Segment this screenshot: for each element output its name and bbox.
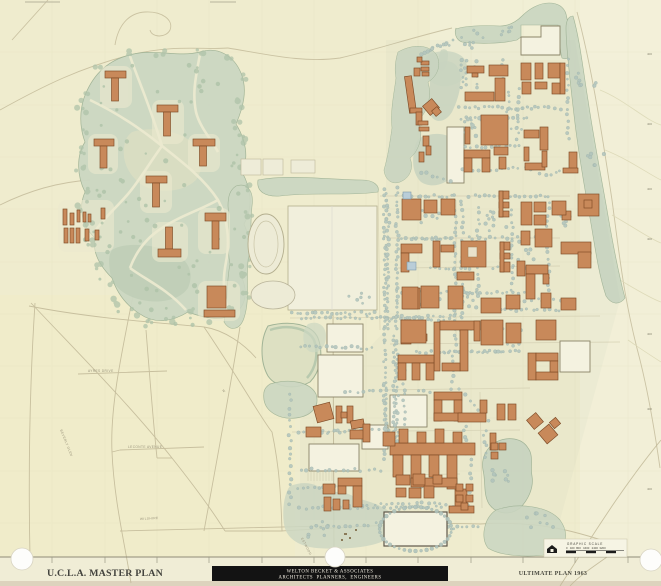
svg-text:0 400 800 1600 2400 32: 0 400 800 1600 2400 3200	[566, 546, 606, 550]
svg-text:400: 400	[647, 52, 652, 56]
svg-text:AYRES DRIVE: AYRES DRIVE	[88, 369, 114, 373]
svg-text:ULTIMATE PLAN 1963: ULTIMATE PLAN 1963	[519, 571, 587, 577]
svg-text:LECONTE AVENUE: LECONTE AVENUE	[128, 445, 162, 449]
svg-text:400: 400	[647, 332, 652, 336]
svg-text:400: 400	[647, 187, 652, 191]
svg-text:400: 400	[647, 237, 652, 241]
svg-text:400: 400	[647, 407, 652, 411]
svg-text:400: 400	[647, 487, 652, 491]
svg-text:U.C.L.A. MASTER PLAN: U.C.L.A. MASTER PLAN	[47, 568, 163, 579]
svg-text:ARCHITECTS PLANNERS, ENGINEE: ARCHITECTS PLANNERS, ENGINEERS	[278, 576, 381, 581]
svg-text:WELTON BECKET & ASSOCIATES: WELTON BECKET & ASSOCIATES	[287, 570, 374, 575]
svg-text:400: 400	[647, 122, 652, 126]
